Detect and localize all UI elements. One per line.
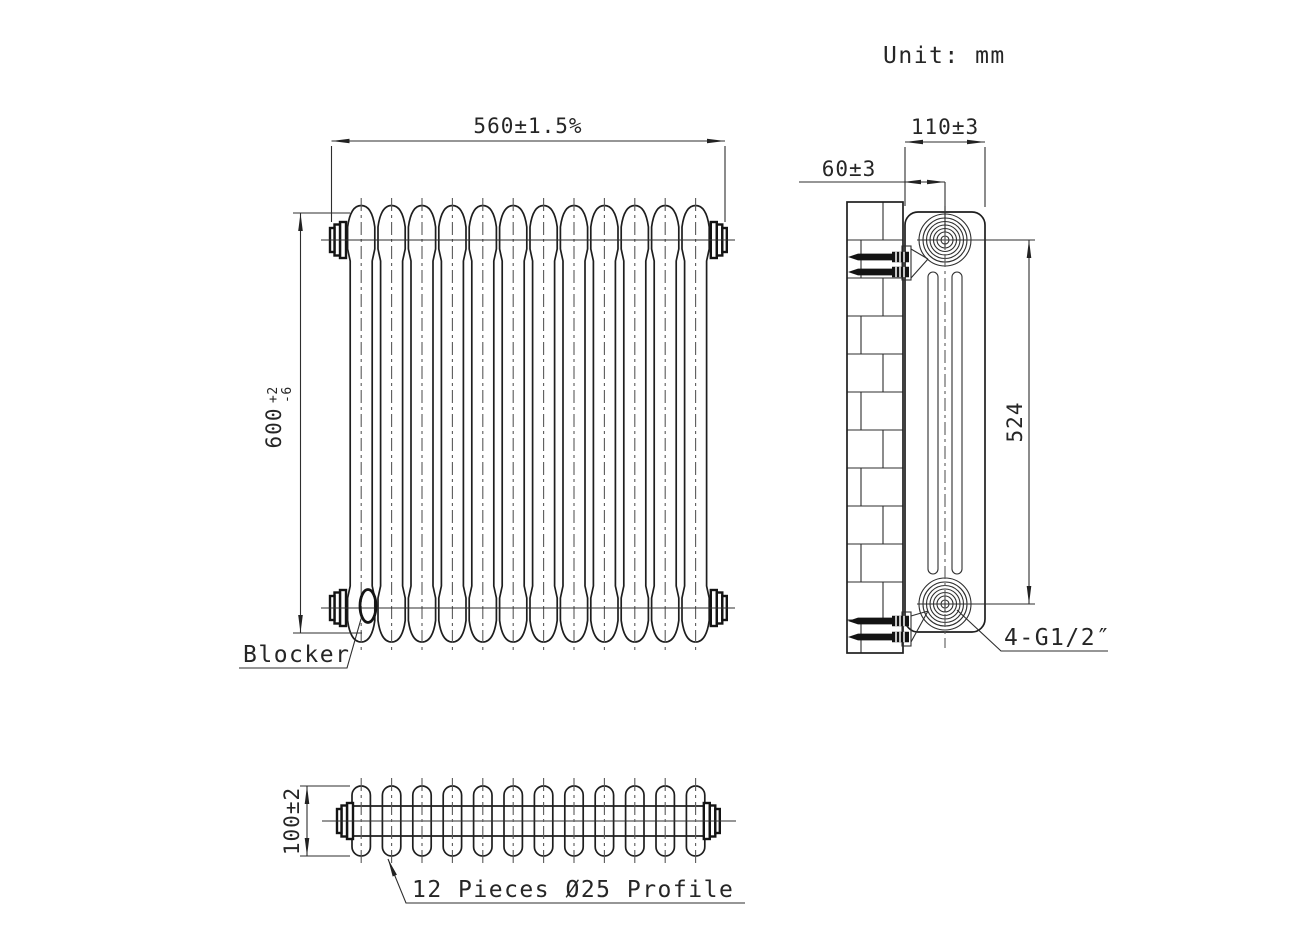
front-width-dim-text: 560±1.5% <box>473 114 582 138</box>
profile-label: 12 Pieces Ø25 Profile <box>412 877 734 903</box>
top-height-dim-text: 100±2 <box>280 787 304 855</box>
front-height-dim-text: 600 <box>262 408 286 449</box>
unit-label: Unit: mm <box>883 43 1006 69</box>
front-end-bushings <box>330 222 727 626</box>
profile-callout: 12 Pieces Ø25 Profile <box>388 859 745 903</box>
top-view: 100±2 12 Pieces Ø25 Profile <box>280 778 745 903</box>
radiator-technical-drawing: Unit: mm 560±1.5% <box>0 0 1316 930</box>
front-height-tol-minus: -6 <box>280 386 295 403</box>
side-column-slot <box>952 272 962 574</box>
side-view: 110±3 60±3 524 4-G1/2″ <box>799 115 1111 653</box>
thread-label: 4-G1/2″ <box>1004 625 1111 651</box>
pitch-dim-text: 524 <box>1003 402 1027 443</box>
blocker-marker <box>360 590 376 623</box>
wall-offset-dim-text: 60±3 <box>822 157 877 181</box>
blocker-label: Blocker <box>243 642 350 668</box>
front-radiator-body <box>321 198 735 650</box>
side-radiator-body <box>905 206 985 648</box>
side-depth-dim-text: 110±3 <box>911 115 979 139</box>
front-height-tol-plus: +2 <box>266 386 281 403</box>
front-view: 560±1.5% 600 +2 -6 Blocker <box>239 114 735 668</box>
front-height-dimension: 600 +2 -6 <box>262 213 362 633</box>
side-column-slot <box>928 272 938 574</box>
top-radiator-body <box>322 778 736 864</box>
thread-callout: 4-G1/2″ <box>957 610 1111 651</box>
pitch-dimension: 524 <box>973 240 1035 604</box>
mounting-brackets <box>902 246 928 646</box>
blocker-callout: Blocker <box>239 590 376 669</box>
